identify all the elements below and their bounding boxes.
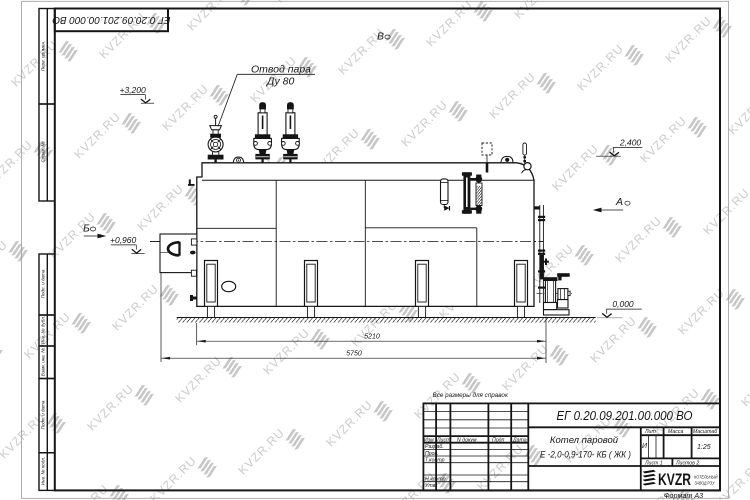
svg-text:Т.контр: Т.контр [425, 458, 445, 464]
svg-text:Изм: Изм [424, 437, 434, 443]
svg-text:Подп. и дата: Подп. и дата [41, 400, 46, 429]
svg-text:Лист: Лист [436, 437, 451, 443]
svg-text:Ду 80: Ду 80 [266, 76, 295, 88]
svg-text:Лит: Лит [644, 429, 656, 435]
svg-text:Разраб.: Разраб. [425, 444, 444, 450]
svg-text:5750: 5750 [346, 351, 362, 358]
svg-text:Масса: Масса [668, 429, 683, 435]
svg-text:Отвод пара: Отвод пара [251, 64, 311, 76]
svg-text:Е -2,0-0,9-170- КБ ( ЖК ): Е -2,0-0,9-170- КБ ( ЖК ) [540, 450, 631, 461]
svg-text:Перв. примен.: Перв. примен. [41, 41, 46, 72]
svg-text:Подп. и дата: Подп. и дата [41, 269, 46, 298]
svg-text:2,400: 2,400 [619, 138, 642, 148]
svg-text:Формат А3: Формат А3 [664, 491, 703, 500]
svg-text:Дата: Дата [512, 437, 527, 443]
svg-text:+0,960: +0,960 [110, 235, 137, 245]
svg-text:Взам. инв. №: Взам. инв. № [41, 348, 46, 376]
svg-text:Все размеры для справок: Все размеры для справок [433, 391, 509, 399]
svg-text:Н.контр: Н.контр [425, 477, 446, 483]
svg-text:+3,200: +3,200 [120, 85, 147, 95]
svg-text:ЕГ 0.20.09.201.00.000 ВО: ЕГ 0.20.09.201.00.000 ВО [52, 14, 170, 25]
svg-text:Лист 1: Лист 1 [644, 461, 663, 467]
svg-text:Справ. №: Справ. № [41, 142, 46, 163]
svg-text:ЗАВОД РЭУ: ЗАВОД РЭУ [695, 481, 716, 486]
svg-text:Инв. № дубл.: Инв. № дубл. [41, 316, 46, 344]
svg-text:А: А [615, 196, 623, 208]
svg-text:5210: 5210 [364, 334, 380, 341]
svg-text:0,000: 0,000 [612, 299, 634, 309]
svg-text:KVZR: KVZR [658, 471, 691, 489]
svg-text:КОТЕЛЬНЫЙ: КОТЕЛЬНЫЙ [694, 475, 718, 480]
svg-text:Инв. № подл.: Инв. № подл. [41, 457, 46, 486]
svg-text:В: В [377, 31, 384, 43]
svg-text:Листов 2: Листов 2 [675, 461, 699, 467]
svg-text:Котел паровой: Котел паровой [550, 435, 619, 446]
svg-text:Пров.: Пров. [425, 451, 439, 457]
svg-text:Б: Б [83, 223, 90, 235]
svg-text:Утв.: Утв. [425, 483, 437, 489]
svg-text:Масштаб: Масштаб [693, 429, 718, 435]
svg-text:N докум: N докум [457, 437, 477, 443]
svg-text:Подп: Подп [492, 437, 505, 443]
svg-text:ЕГ 0.20.09.201.00.000 ВО: ЕГ 0.20.09.201.00.000 ВО [557, 409, 693, 423]
svg-text:1:25: 1:25 [697, 444, 711, 451]
